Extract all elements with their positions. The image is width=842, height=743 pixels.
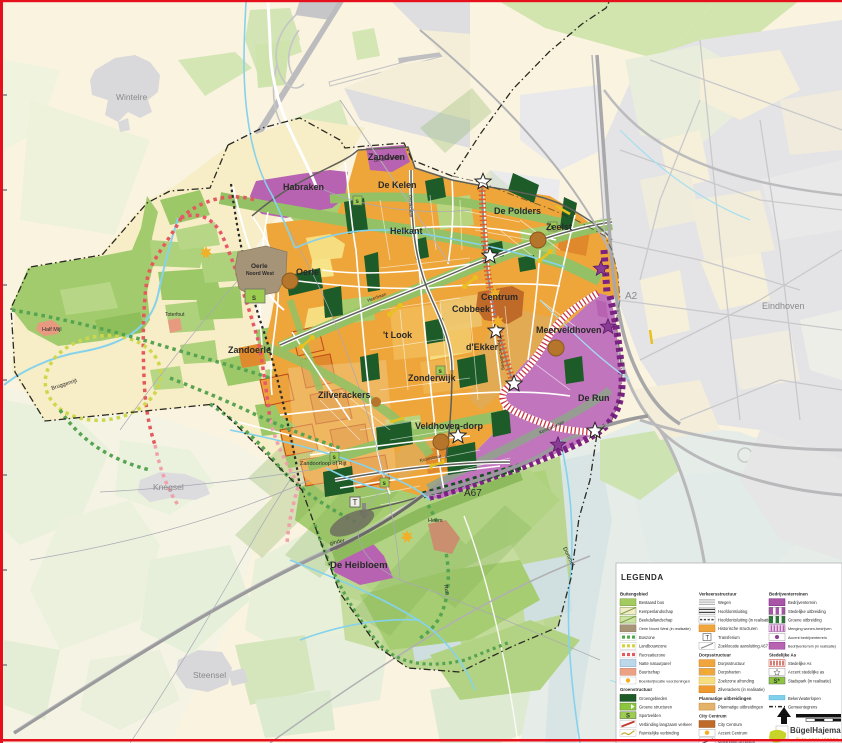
- svg-text:Zilverackers (in realisatie): Zilverackers (in realisatie): [718, 687, 765, 692]
- svg-text:S: S: [252, 296, 256, 302]
- svg-text:Dorpsharten: Dorpsharten: [718, 670, 741, 675]
- svg-text:Oerle Noord West (in realisati: Oerle Noord West (in realisatie): [639, 627, 691, 631]
- svg-text:Hoofdontsluiting: Hoofdontsluiting: [718, 609, 748, 614]
- svg-text:Verkeersstructuur: Verkeersstructuur: [699, 592, 737, 597]
- svg-text:Buurtschap: Buurtschap: [639, 670, 660, 675]
- svg-text:Stedelijke As: Stedelijke As: [788, 661, 811, 666]
- svg-text:De Polders: De Polders: [494, 206, 541, 216]
- svg-text:Stedelijke As: Stedelijke As: [769, 652, 797, 657]
- svg-text:'t Look: 't Look: [383, 330, 413, 340]
- svg-text:Historische structuren: Historische structuren: [718, 626, 758, 631]
- svg-text:Groenstructuur: Groenstructuur: [620, 687, 652, 692]
- svg-text:De Kelen: De Kelen: [378, 180, 417, 190]
- svg-text:Zeelst: Zeelst: [546, 222, 572, 232]
- svg-text:City Centrum: City Centrum: [718, 722, 742, 727]
- svg-text:Zandoorloop of Rijt: Zandoorloop of Rijt: [300, 461, 347, 467]
- svg-text:S: S: [626, 714, 630, 720]
- svg-text:Bestaand bos: Bestaand bos: [639, 600, 664, 605]
- svg-text:Beekdallandschap: Beekdallandschap: [639, 618, 673, 623]
- svg-text:Bedrijventerrein: Bedrijventerrein: [788, 600, 817, 605]
- svg-text:De Run: De Run: [578, 393, 610, 403]
- svg-text:Helkant: Helkant: [390, 226, 423, 236]
- svg-text:A2: A2: [625, 291, 638, 302]
- svg-text:Zoekzone afronding: Zoekzone afronding: [718, 678, 755, 683]
- svg-text:Habraken: Habraken: [283, 182, 324, 192]
- svg-text:Toterfout: Toterfout: [165, 312, 185, 318]
- svg-text:Steensel: Steensel: [193, 670, 226, 680]
- svg-text:Boerderijlocatie voorzieningen: Boerderijlocatie voorzieningen: [639, 679, 690, 683]
- svg-text:Natte natuurparel: Natte natuurparel: [639, 661, 671, 666]
- svg-text:Half Mijl: Half Mijl: [42, 327, 62, 333]
- svg-text:T: T: [706, 635, 710, 641]
- svg-text:Knegsel: Knegsel: [153, 482, 184, 492]
- svg-text:Veldhoven-dorp: Veldhoven-dorp: [415, 421, 484, 431]
- svg-text:LEGENDA: LEGENDA: [621, 573, 664, 582]
- svg-text:Eindhoven: Eindhoven: [762, 301, 805, 311]
- svg-text:T: T: [353, 498, 358, 507]
- svg-text:Groene structuren: Groene structuren: [639, 705, 673, 710]
- svg-text:Recreatiezone: Recreatiezone: [639, 652, 666, 657]
- svg-text:Zoeklocatie aansluiting A67: Zoeklocatie aansluiting A67: [718, 644, 769, 649]
- svg-text:Sportvelden: Sportvelden: [639, 713, 662, 718]
- svg-text:Stedelijke uitbreiding: Stedelijke uitbreiding: [788, 609, 827, 614]
- svg-text:Oerle: Oerle: [296, 267, 319, 277]
- svg-text:Oersebaan: Oersebaan: [408, 195, 414, 218]
- svg-text:Accent stedelijke as: Accent stedelijke as: [788, 670, 824, 675]
- svg-text:De Heibloem: De Heibloem: [330, 560, 388, 571]
- svg-text:Buitengebied: Buitengebied: [620, 592, 648, 597]
- svg-text:BügelHajema: BügelHajema: [790, 726, 841, 735]
- svg-text:Bedrijventerrein (in realisati: Bedrijventerrein (in realisatie): [788, 645, 836, 649]
- svg-text:Accent Centrum: Accent Centrum: [718, 731, 748, 736]
- svg-text:Zonderwijk: Zonderwijk: [408, 373, 456, 383]
- svg-text:A67: A67: [464, 488, 482, 499]
- svg-text:Oerle: Oerle: [251, 263, 268, 270]
- svg-text:Planmatige uitbreidingen: Planmatige uitbreidingen: [718, 705, 764, 710]
- svg-text:Groene uitbreiding: Groene uitbreiding: [788, 618, 822, 623]
- svg-text:City Centrum: City Centrum: [699, 713, 727, 718]
- svg-text:Bedrijventerreinen: Bedrijventerreinen: [769, 592, 808, 597]
- svg-text:Cobbeek: Cobbeek: [452, 304, 491, 314]
- svg-text:Wegen: Wegen: [718, 600, 732, 605]
- svg-text:Stadspark (in realisatie): Stadspark (in realisatie): [788, 678, 832, 683]
- svg-text:d'Ekker: d'Ekker: [466, 342, 499, 352]
- svg-text:Transferium: Transferium: [718, 635, 740, 640]
- svg-text:Landbouwzone: Landbouwzone: [639, 644, 667, 649]
- svg-text:Dorpsstructuur: Dorpsstructuur: [718, 661, 745, 666]
- svg-text:Beken/waterlopen: Beken/waterlopen: [788, 696, 821, 701]
- svg-text:Zandoerle: Zandoerle: [228, 345, 271, 355]
- svg-text:Boszone: Boszone: [639, 635, 656, 640]
- svg-text:Hoofdontsluiting (in realisati: Hoofdontsluiting (in realisatie): [718, 618, 773, 623]
- svg-text:Gemeentegrens: Gemeentegrens: [788, 705, 817, 710]
- svg-text:S*: S*: [774, 679, 781, 685]
- svg-text:Dorpsstructuur: Dorpsstructuur: [699, 652, 731, 657]
- svg-text:Accent bedrijventerrein: Accent bedrijventerrein: [788, 636, 827, 640]
- svg-text:Noord West: Noord West: [246, 271, 274, 277]
- svg-text:Ruimtelijke verbinding: Ruimtelijke verbinding: [639, 731, 680, 736]
- svg-text:Verbinding langzaam verkeer: Verbinding langzaam verkeer: [639, 722, 693, 727]
- svg-text:Heers: Heers: [428, 518, 443, 524]
- svg-text:Meerveldhoven: Meerveldhoven: [536, 325, 602, 335]
- svg-text:Groengebieden: Groengebieden: [639, 696, 668, 701]
- svg-text:Menging wonen-bedrijven: Menging wonen-bedrijven: [788, 627, 831, 631]
- svg-text:Zilverackers: Zilverackers: [318, 390, 371, 400]
- svg-text:Centrum: Centrum: [481, 292, 518, 302]
- svg-text:Kempenlandschap: Kempenlandschap: [639, 609, 674, 614]
- svg-text:Wintelre: Wintelre: [116, 92, 147, 102]
- svg-text:Planmatige uitbreidingen: Planmatige uitbreidingen: [699, 696, 752, 701]
